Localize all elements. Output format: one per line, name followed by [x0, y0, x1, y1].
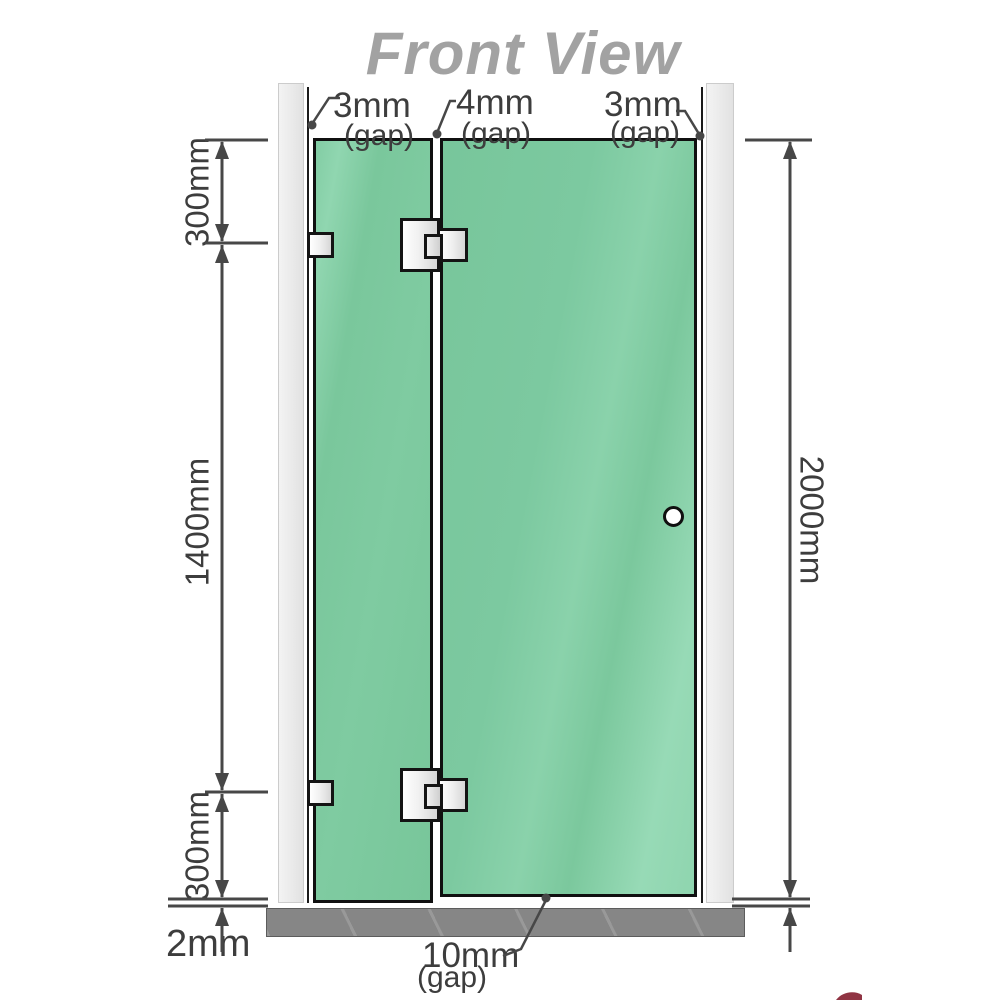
top-hinge-pivot-icon: [424, 234, 443, 259]
bottom-wall-bracket-icon: [307, 780, 334, 806]
left-dimension-lines: [168, 140, 268, 952]
right-dimension-lines: [732, 140, 812, 952]
bottom-hinge-pivot-icon: [424, 784, 443, 809]
door-knob-icon: [663, 506, 684, 527]
top-wall-bracket-icon: [307, 232, 334, 258]
watermark-logo-fragment: [836, 992, 862, 1000]
front-view-diagram: Front View: [0, 0, 1000, 1000]
gap-leader-lines: [308, 98, 705, 956]
dimension-graphics: [0, 0, 1000, 1000]
